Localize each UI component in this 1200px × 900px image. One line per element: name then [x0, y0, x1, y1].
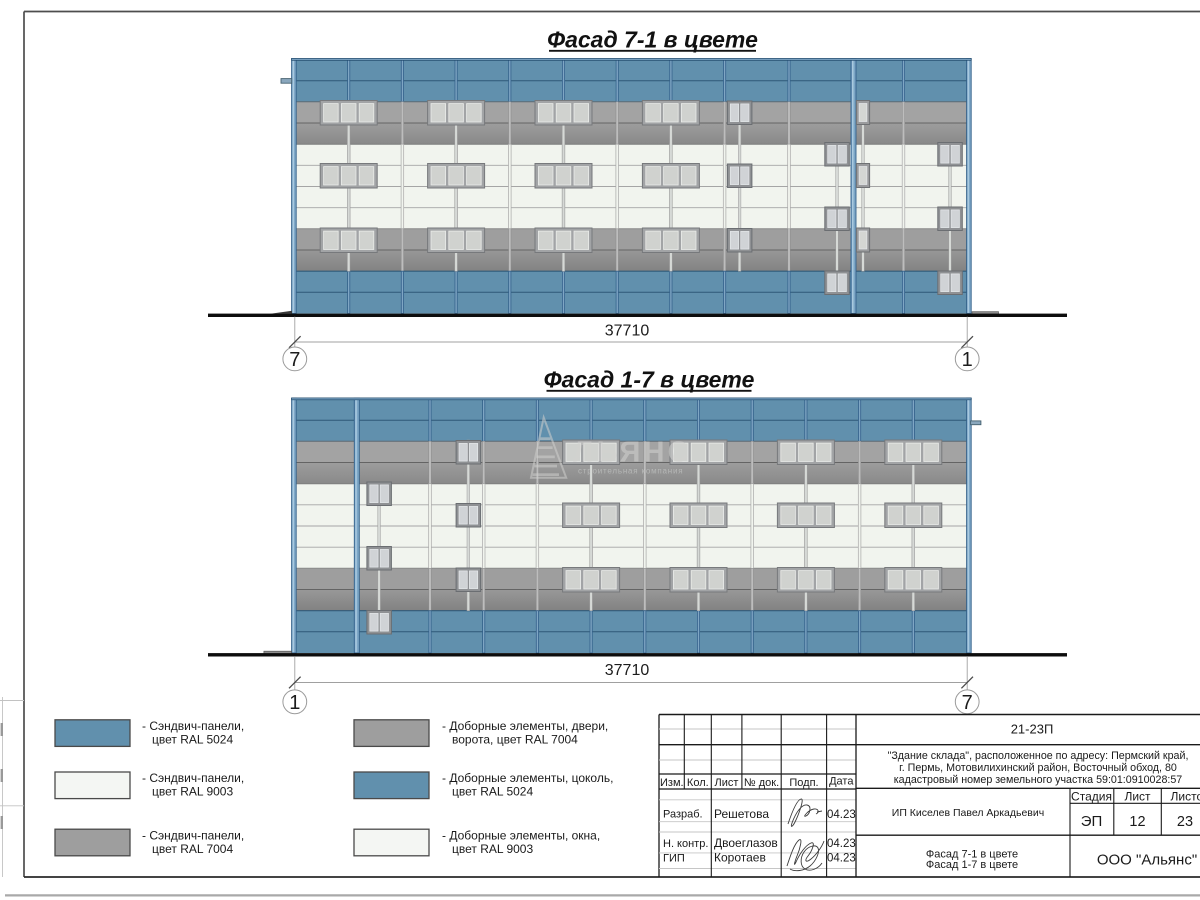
svg-text:- Сэндвич-панели,: - Сэндвич-панели, [142, 828, 244, 842]
svg-text:1: 1 [962, 349, 973, 371]
svg-text:ИП Киселев Павел Аркадьевич: ИП Киселев Павел Аркадьевич [892, 807, 1044, 819]
svg-text:Листов: Листов [1171, 790, 1200, 804]
svg-text:Подп.: Подп. [789, 777, 818, 789]
svg-text:37710: 37710 [605, 323, 650, 340]
svg-text:кадастровый номер земельного у: кадастровый номер земельного участка 59:… [894, 774, 1183, 786]
svg-text:Лист: Лист [715, 777, 739, 789]
svg-text:ворота, цвет RAL 7004: ворота, цвет RAL 7004 [452, 732, 578, 746]
svg-text:Двоеглазов: Двоеглазов [714, 836, 778, 850]
svg-text:- Сэндвич-панели,: - Сэндвич-панели, [142, 771, 244, 785]
svg-text:21-23П: 21-23П [1011, 722, 1054, 737]
svg-text:04.23: 04.23 [827, 838, 856, 850]
svg-text:ЭП: ЭП [1081, 813, 1103, 830]
svg-text:- Доборные элементы, окна,: - Доборные элементы, окна, [442, 828, 600, 842]
svg-text:- Доборные элементы, цоколь,: - Доборные элементы, цоколь, [442, 771, 613, 785]
svg-text:1: 1 [289, 692, 300, 714]
svg-text:цвет RAL 7004: цвет RAL 7004 [152, 842, 233, 856]
svg-text:12: 12 [1129, 814, 1145, 830]
svg-text:ООО "Альянс": ООО "Альянс" [1097, 852, 1197, 869]
svg-text:строительная компания: строительная компания [578, 467, 683, 476]
svg-text:Фасад 1-7 в цвете: Фасад 1-7 в цвете [544, 367, 755, 393]
svg-text:цвет RAL 9003: цвет RAL 9003 [452, 842, 533, 856]
svg-text:7: 7 [962, 692, 973, 714]
svg-text:Фасад 1-7 в цвете: Фасад 1-7 в цвете [926, 859, 1018, 871]
svg-text:Н. контр.: Н. контр. [663, 838, 708, 850]
svg-text:цвет RAL 5024: цвет RAL 5024 [452, 785, 533, 799]
svg-text:37710: 37710 [605, 662, 650, 679]
svg-text:- Сэндвич-панели,: - Сэндвич-панели, [142, 719, 244, 733]
svg-text:"Здание склада", расположенное: "Здание склада", расположенное по адресу… [888, 750, 1189, 762]
svg-text:Лист: Лист [1124, 790, 1151, 804]
svg-text:Стадия: Стадия [1071, 790, 1112, 804]
svg-text:23: 23 [1177, 814, 1193, 830]
svg-text:ГИП: ГИП [663, 853, 685, 865]
svg-text:Разраб.: Разраб. [663, 809, 703, 821]
svg-text:ЛЬЯНС: ЛЬЯНС [573, 437, 692, 469]
svg-text:цвет RAL 9003: цвет RAL 9003 [152, 785, 233, 799]
svg-text:Коротаев: Коротаев [714, 851, 766, 865]
svg-text:г. Пермь, Мотовилихинский райо: г. Пермь, Мотовилихинский район, Восточн… [899, 762, 1177, 774]
svg-text:Фасад 7-1 в цвете: Фасад 7-1 в цвете [547, 27, 758, 53]
svg-text:№ док.: № док. [744, 777, 779, 789]
svg-text:7: 7 [289, 349, 300, 371]
svg-text:Решетова: Решетова [714, 807, 769, 821]
svg-text:Кол.: Кол. [687, 777, 709, 789]
svg-text:Изм.: Изм. [660, 777, 684, 789]
svg-text:- Доборные элементы, двери,: - Доборные элементы, двери, [442, 719, 608, 733]
svg-text:04.23: 04.23 [827, 809, 856, 821]
svg-text:04.23: 04.23 [827, 853, 856, 865]
svg-text:цвет RAL 5024: цвет RAL 5024 [152, 732, 233, 746]
svg-text:Дата: Дата [829, 776, 854, 788]
